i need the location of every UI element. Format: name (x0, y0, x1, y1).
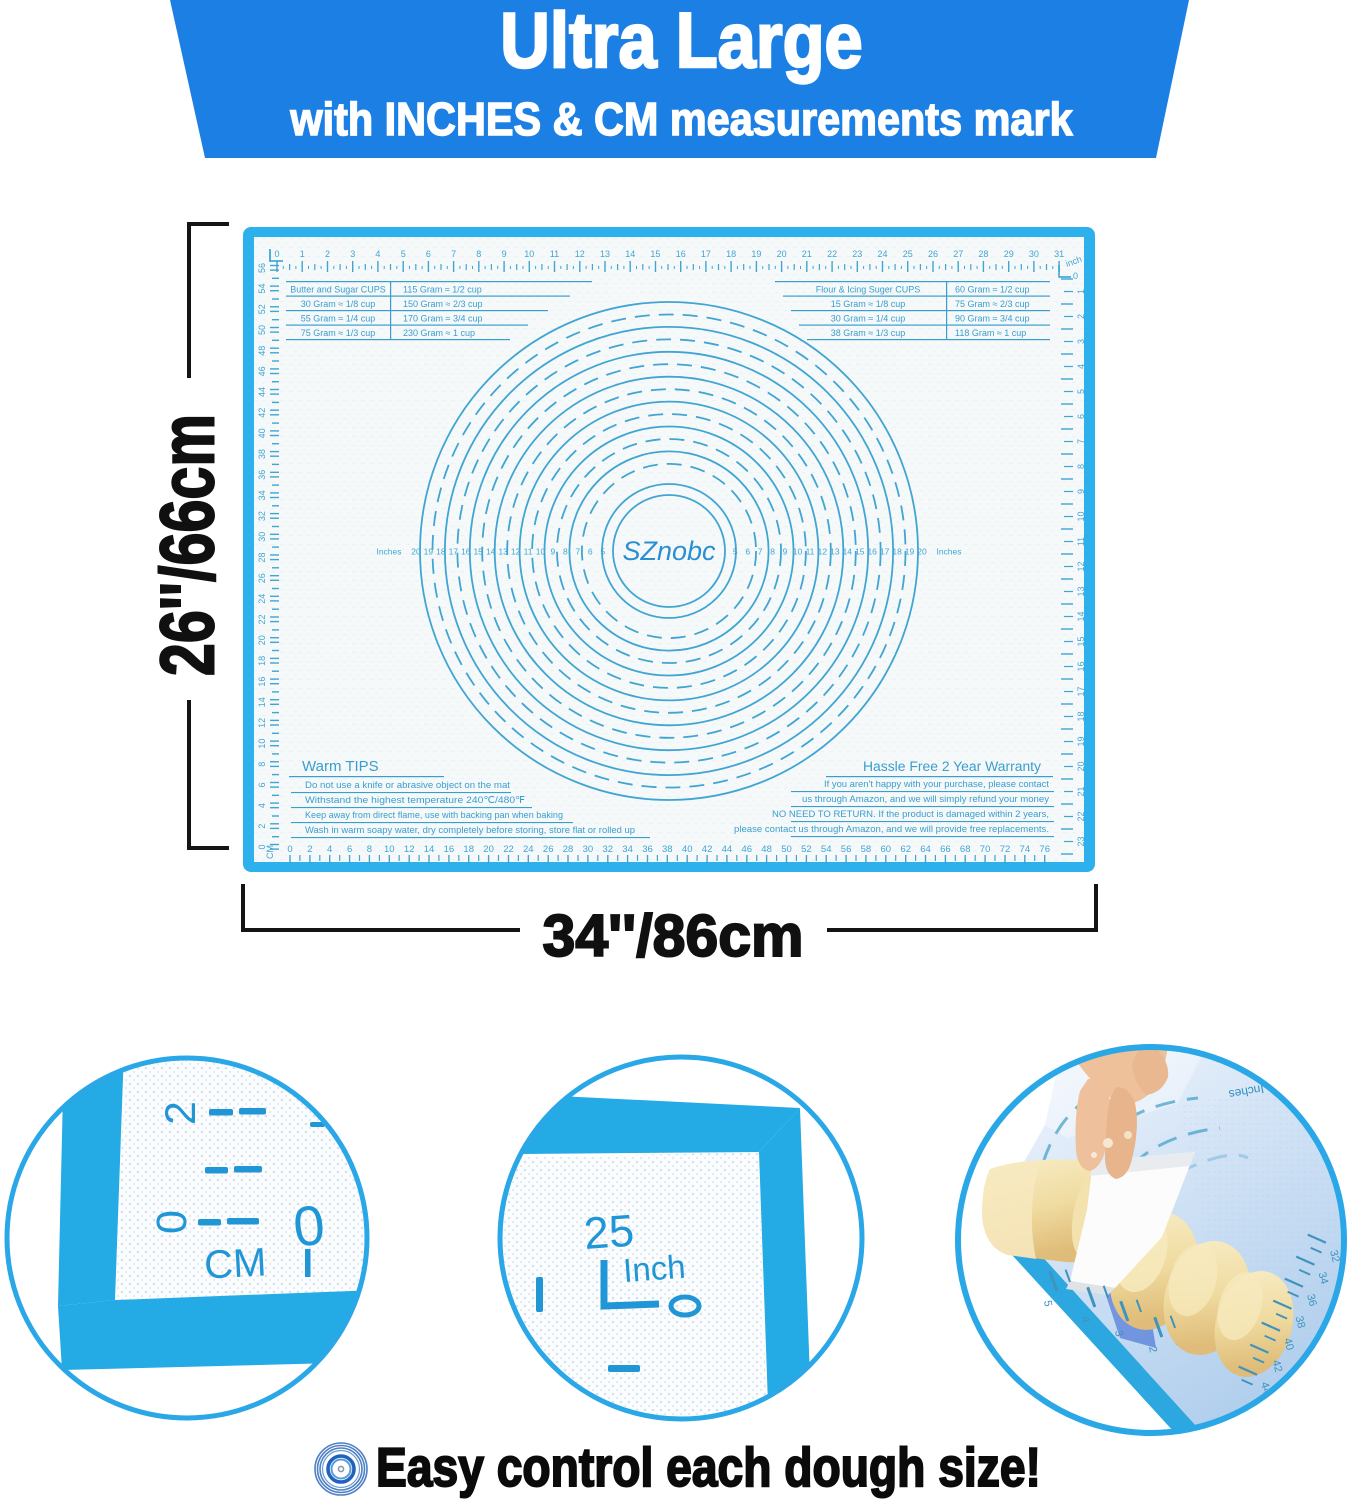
svg-text:22: 22 (1076, 811, 1086, 821)
svg-text:30: 30 (257, 532, 267, 542)
svg-text:10: 10 (257, 739, 267, 749)
svg-text:90 Gram ≈ 3/4 cup: 90 Gram ≈ 3/4 cup (955, 314, 1029, 324)
svg-text:30: 30 (583, 844, 594, 855)
svg-text:31: 31 (1054, 249, 1064, 259)
svg-text:14: 14 (1076, 611, 1086, 621)
svg-text:8: 8 (563, 547, 568, 557)
svg-text:us through Amazon, and we wil: us through Amazon, and we will simply re… (802, 794, 1049, 805)
svg-text:9: 9 (502, 249, 507, 259)
svg-text:16: 16 (867, 547, 877, 557)
svg-text:14: 14 (625, 249, 635, 259)
svg-text:76: 76 (1039, 844, 1050, 855)
svg-text:40: 40 (682, 844, 693, 855)
svg-text:23: 23 (852, 249, 862, 259)
svg-text:10: 10 (1076, 511, 1086, 521)
svg-text:75 Gram ≈ 2/3 cup: 75 Gram ≈ 2/3 cup (955, 299, 1029, 309)
svg-text:52: 52 (257, 304, 267, 314)
svg-text:6: 6 (1076, 414, 1086, 419)
svg-text:16: 16 (257, 677, 267, 687)
svg-text:16: 16 (1076, 661, 1086, 671)
svg-text:12: 12 (257, 718, 267, 728)
svg-text:11: 11 (806, 547, 815, 557)
svg-text:16: 16 (676, 249, 686, 259)
svg-text:18: 18 (726, 249, 736, 259)
svg-text:18: 18 (892, 547, 902, 557)
svg-text:74: 74 (1020, 844, 1031, 855)
svg-text:5: 5 (401, 249, 406, 259)
svg-text:24: 24 (257, 594, 267, 604)
svg-text:SZnobc: SZnobc (622, 536, 716, 566)
svg-text:56: 56 (257, 263, 267, 273)
svg-text:38: 38 (662, 844, 673, 855)
svg-text:15: 15 (855, 547, 865, 557)
svg-text:18: 18 (1076, 711, 1086, 721)
svg-text:NO NEED TO RETURN. If the prod: NO NEED TO RETURN. If the product is dam… (772, 809, 1049, 820)
svg-text:27: 27 (953, 249, 963, 259)
svg-text:115 Gram ≈ 1/2 cup: 115 Gram ≈ 1/2 cup (403, 285, 482, 295)
svg-text:2: 2 (157, 1101, 205, 1125)
svg-text:230 Gram ≈ 1 cup: 230 Gram ≈ 1 cup (403, 328, 475, 338)
svg-text:4: 4 (375, 249, 380, 259)
svg-text:44: 44 (722, 844, 733, 855)
svg-text:28: 28 (257, 552, 267, 562)
svg-text:7: 7 (1076, 439, 1086, 444)
svg-text:6: 6 (588, 547, 593, 557)
svg-text:22: 22 (503, 844, 514, 855)
svg-text:21: 21 (802, 249, 812, 259)
svg-text:50: 50 (257, 325, 267, 335)
svg-text:9: 9 (1076, 489, 1086, 494)
svg-text:60 Gram ≈ 1/2 cup: 60 Gram ≈ 1/2 cup (955, 285, 1029, 295)
svg-text:66: 66 (940, 844, 951, 855)
svg-text:54: 54 (821, 844, 832, 855)
svg-text:2: 2 (325, 249, 330, 259)
svg-text:6: 6 (745, 547, 750, 557)
svg-text:13: 13 (830, 547, 840, 557)
svg-text:20: 20 (917, 547, 927, 557)
svg-text:10: 10 (384, 844, 395, 855)
svg-text:55 Gram ≈ 1/4 cup: 55 Gram ≈ 1/4 cup (301, 314, 375, 324)
svg-text:15: 15 (1076, 636, 1086, 646)
svg-text:75 Gram ≈ 1/3 cup: 75 Gram ≈ 1/3 cup (301, 328, 375, 338)
svg-text:14: 14 (843, 547, 853, 557)
svg-text:16: 16 (444, 844, 455, 855)
svg-text:36: 36 (642, 844, 653, 855)
svg-text:11: 11 (524, 547, 533, 557)
svg-text:29: 29 (1004, 249, 1014, 259)
svg-text:34: 34 (257, 490, 267, 500)
svg-text:48: 48 (257, 346, 267, 356)
svg-text:8: 8 (367, 844, 372, 855)
svg-text:4: 4 (327, 844, 332, 855)
svg-text:Inches: Inches (376, 547, 401, 557)
svg-text:56: 56 (841, 844, 852, 855)
svg-text:42: 42 (702, 844, 713, 855)
svg-text:10: 10 (536, 547, 546, 557)
svg-text:17: 17 (449, 547, 459, 557)
svg-text:28: 28 (978, 249, 988, 259)
svg-text:6: 6 (426, 249, 431, 259)
svg-text:11: 11 (550, 249, 559, 259)
svg-text:CM: CM (203, 1240, 267, 1287)
svg-text:8: 8 (476, 249, 481, 259)
svg-text:26: 26 (928, 249, 938, 259)
svg-text:4: 4 (257, 803, 267, 808)
svg-text:44: 44 (257, 387, 267, 397)
svg-text:170 Gram ≈ 3/4 cup: 170 Gram ≈ 3/4 cup (403, 314, 482, 324)
svg-text:Withstand the highest temperat: Withstand the highest temperature 240℃/4… (305, 795, 525, 806)
svg-text:10: 10 (793, 547, 803, 557)
svg-text:1: 1 (300, 249, 305, 259)
svg-text:2: 2 (1076, 314, 1086, 319)
svg-text:7: 7 (758, 547, 763, 557)
svg-text:8: 8 (770, 547, 775, 557)
svg-text:1: 1 (1076, 289, 1086, 294)
svg-text:15 Gram ≈ 1/8 cup: 15 Gram ≈ 1/8 cup (831, 299, 905, 309)
svg-text:70: 70 (980, 844, 991, 855)
svg-text:36: 36 (257, 470, 267, 480)
svg-text:CM: CM (265, 845, 275, 859)
svg-text:18: 18 (257, 656, 267, 666)
svg-text:5: 5 (733, 547, 738, 557)
svg-text:please contact us through Amaz: please contact us through Amazon, and we… (734, 824, 1049, 835)
svg-text:14: 14 (424, 844, 435, 855)
svg-text:19: 19 (905, 547, 915, 557)
svg-text:20: 20 (411, 547, 421, 557)
svg-text:Wash in warm soapy water, dry: Wash in warm soapy water, dry completely… (305, 825, 635, 836)
svg-text:18: 18 (436, 547, 446, 557)
svg-text:13: 13 (600, 249, 610, 259)
svg-text:20: 20 (257, 635, 267, 645)
svg-text:26: 26 (257, 573, 267, 583)
svg-text:22: 22 (257, 614, 267, 624)
svg-text:Inch: Inch (622, 1248, 687, 1289)
svg-text:12: 12 (511, 547, 521, 557)
svg-text:19: 19 (424, 547, 434, 557)
svg-text:58: 58 (861, 844, 872, 855)
svg-text:52: 52 (801, 844, 812, 855)
svg-text:54: 54 (257, 284, 267, 294)
svg-text:20: 20 (777, 249, 787, 259)
svg-text:6: 6 (257, 782, 267, 787)
svg-text:8: 8 (257, 762, 267, 767)
svg-text:17: 17 (1076, 686, 1086, 696)
svg-text:18: 18 (463, 844, 474, 855)
svg-text:48: 48 (761, 844, 772, 855)
svg-text:8: 8 (1076, 464, 1086, 469)
svg-text:25: 25 (903, 249, 913, 259)
svg-text:38 Gram ≈ 1/3 cup: 38 Gram ≈ 1/3 cup (831, 328, 905, 338)
svg-text:6: 6 (347, 844, 352, 855)
svg-text:46: 46 (257, 366, 267, 376)
svg-text:34: 34 (622, 844, 633, 855)
svg-text:68: 68 (960, 844, 971, 855)
svg-text:14: 14 (486, 547, 496, 557)
svg-text:40: 40 (257, 428, 267, 438)
svg-text:60: 60 (881, 844, 892, 855)
svg-text:Flour & Icing Suger CUPS: Flour & Icing Suger CUPS (816, 285, 921, 295)
svg-text:32: 32 (603, 844, 614, 855)
svg-text:30 Gram ≈ 1/4 cup: 30 Gram ≈ 1/4 cup (831, 314, 905, 324)
svg-text:15: 15 (473, 547, 483, 557)
svg-text:17: 17 (701, 249, 711, 259)
svg-text:30: 30 (1029, 249, 1039, 259)
svg-text:15: 15 (650, 249, 660, 259)
svg-text:Butter and Sugar CUPS: Butter and Sugar CUPS (290, 285, 386, 295)
svg-text:11: 11 (1076, 537, 1086, 546)
svg-text:Warm TIPS: Warm TIPS (302, 758, 379, 775)
svg-text:118 Gram ≈ 1 cup: 118 Gram ≈ 1 cup (955, 328, 1026, 338)
svg-text:16: 16 (461, 547, 471, 557)
svg-text:3: 3 (350, 249, 355, 259)
svg-text:24: 24 (523, 844, 534, 855)
svg-text:5: 5 (600, 547, 605, 557)
svg-text:62: 62 (900, 844, 911, 855)
svg-text:13: 13 (498, 547, 508, 557)
svg-text:20: 20 (483, 844, 494, 855)
svg-text:12: 12 (1076, 561, 1086, 571)
svg-text:23: 23 (1076, 836, 1086, 846)
svg-text:0: 0 (274, 249, 279, 259)
svg-text:3: 3 (1076, 339, 1086, 344)
svg-text:7: 7 (576, 547, 581, 557)
svg-text:28: 28 (563, 844, 574, 855)
svg-text:9: 9 (551, 547, 556, 557)
svg-text:Inches: Inches (936, 547, 961, 557)
svg-text:22: 22 (827, 249, 837, 259)
svg-text:9: 9 (783, 547, 788, 557)
svg-text:19: 19 (751, 249, 761, 259)
svg-text:14: 14 (257, 697, 267, 707)
svg-text:12: 12 (575, 249, 585, 259)
svg-text:0: 0 (1073, 271, 1078, 281)
svg-text:Hassle Free 2 Year Warranty: Hassle Free 2 Year Warranty (863, 759, 1041, 774)
svg-text:19: 19 (1076, 736, 1086, 746)
svg-text:64: 64 (920, 844, 931, 855)
svg-text:32: 32 (257, 511, 267, 521)
svg-text:17: 17 (880, 547, 890, 557)
svg-text:21: 21 (1076, 786, 1086, 796)
svg-text:13: 13 (1076, 586, 1086, 596)
svg-text:12: 12 (818, 547, 828, 557)
svg-text:0: 0 (148, 1210, 196, 1234)
svg-text:26: 26 (543, 844, 554, 855)
svg-text:12: 12 (404, 844, 415, 855)
svg-text:2: 2 (257, 824, 267, 829)
svg-text:72: 72 (1000, 844, 1011, 855)
svg-text:46: 46 (742, 844, 753, 855)
svg-text:10: 10 (524, 249, 534, 259)
svg-text:7: 7 (451, 249, 456, 259)
svg-text:30 Gram ≈ 1/8 cup: 30 Gram ≈ 1/8 cup (301, 299, 375, 309)
svg-text:24: 24 (877, 249, 887, 259)
svg-text:0: 0 (290, 1193, 328, 1259)
svg-text:Keep away from direct flame, u: Keep away from direct flame, use with ba… (305, 810, 563, 821)
svg-text:42: 42 (257, 408, 267, 418)
svg-text:If you aren't happy with your: If you aren't happy with your purchase, … (824, 779, 1049, 790)
svg-text:0: 0 (287, 844, 292, 855)
svg-text:5: 5 (1076, 389, 1086, 394)
svg-text:50: 50 (781, 844, 792, 855)
svg-text:38: 38 (257, 449, 267, 459)
svg-text:2: 2 (307, 844, 312, 855)
svg-text:Do not use a knife or abrasive: Do not use a knife or abrasive object on… (305, 780, 510, 791)
svg-text:4: 4 (1076, 364, 1086, 369)
svg-text:150 Gram ≈ 2/3 cup: 150 Gram ≈ 2/3 cup (403, 299, 482, 309)
svg-text:20: 20 (1076, 761, 1086, 771)
